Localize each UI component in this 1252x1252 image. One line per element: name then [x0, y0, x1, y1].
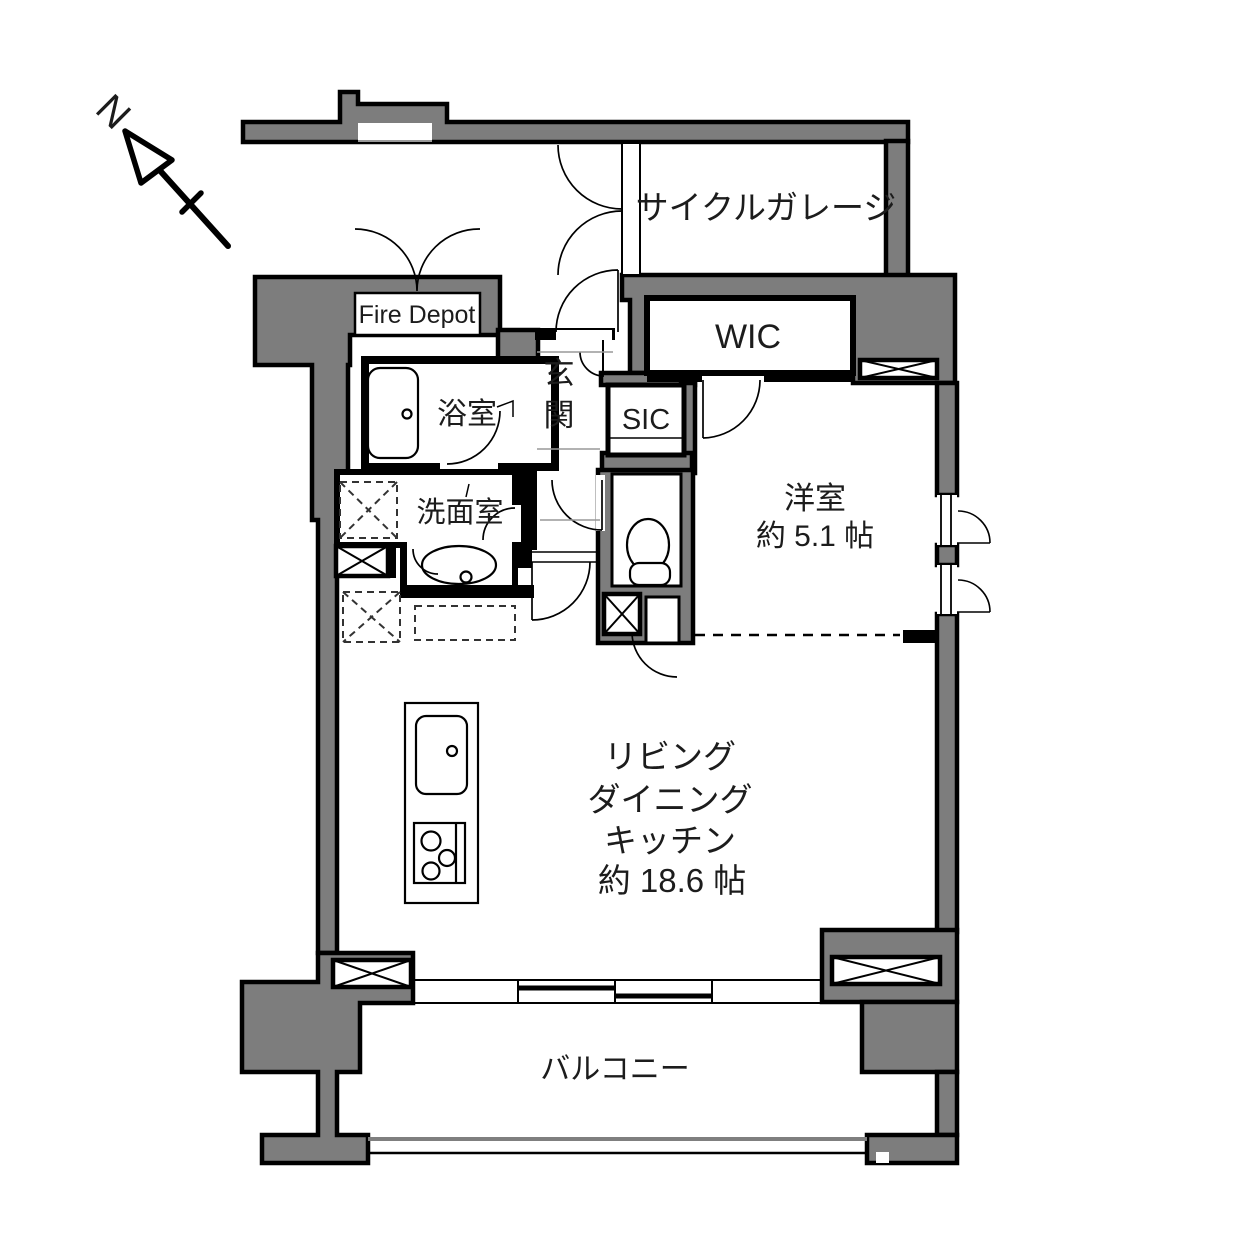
window-swing-upper [957, 511, 990, 543]
hall-top-door-gap [556, 330, 612, 340]
wall-bottom-right-2 [862, 1002, 957, 1072]
balcony-sliding-window [413, 980, 822, 1003]
floor-plan-page: N サイクルガレージ Fire Depot WIC SIC 玄 関 浴室 洗面室… [0, 0, 1252, 1252]
wall-right-long [937, 614, 957, 932]
hall-ldk-door-arc [532, 562, 590, 620]
room-label-sic: SIC [622, 404, 670, 436]
room-label-ldk-line4: 約 18.6 帖 [598, 862, 747, 899]
room-label-wic: WIC [715, 318, 781, 356]
room-label-ldk-line2: ダイニング [588, 781, 753, 818]
wall-hall-stub [516, 547, 532, 568]
room-label-fire-depot: Fire Depot [359, 301, 476, 329]
pillar-box-left-mid [336, 546, 388, 576]
wall-right-upper [937, 383, 957, 495]
room-label-bathroom: 浴室 [437, 398, 497, 431]
room-label-cycle-garage: サイクルガレージ [636, 189, 897, 226]
front-door-arc [556, 270, 618, 332]
wash-basin [422, 546, 496, 584]
room-label-washroom: 洗面室 [416, 496, 503, 529]
pillar-box-bottom-left [333, 960, 411, 987]
balcony-railing [368, 1139, 867, 1153]
dashed-box-kitchen-side [343, 592, 400, 642]
room-label-entrance-char2: 関 [544, 398, 575, 433]
toilet-door-arc [552, 480, 602, 530]
wall-top-band [243, 92, 908, 142]
room-label-entrance-char1: 玄 [544, 356, 575, 391]
toilet-recess [646, 597, 679, 643]
washroom-door-gap [510, 505, 521, 542]
room-label-ldk-line1: リビング [604, 738, 736, 775]
compass: N [87, 86, 228, 246]
garage-door-arc-upper [558, 145, 622, 209]
dashed-appliance-space [415, 606, 515, 640]
wic-door-arc [703, 380, 760, 438]
shaft-box-toilet [604, 594, 640, 634]
wall-yoshitsu-ldk-stub [903, 630, 937, 643]
floor-plan-svg: N サイクルガレージ Fire Depot WIC SIC 玄 関 浴室 洗面室… [0, 0, 1252, 1252]
kitchen-counter [405, 703, 478, 903]
cap-notch [876, 1152, 889, 1163]
room-label-ldk-line3: キッチン [604, 822, 736, 859]
room-label-balcony: バルコニー [540, 1053, 689, 1086]
room-label-western-room-size: 約 5.1 帖 [756, 520, 874, 553]
garage-door-arc-lower [558, 211, 622, 275]
compass-north-label: N [87, 86, 139, 138]
toilet-door-gap [596, 475, 605, 531]
window-swing-lower [957, 580, 990, 612]
wall-right-window-mid [937, 545, 957, 565]
pillar-box-bottom-right [832, 957, 940, 984]
kitchen-stove [414, 823, 465, 883]
wall-balcony-right [937, 1072, 957, 1135]
hall-ldk-threshold [530, 552, 600, 562]
top-band-opening [358, 123, 432, 142]
kitchen-sink [416, 716, 467, 794]
room-label-western-room: 洋室 [784, 481, 846, 516]
pillar-box-right-mid [860, 360, 937, 378]
bathtub [368, 368, 418, 458]
toilet [627, 519, 670, 585]
